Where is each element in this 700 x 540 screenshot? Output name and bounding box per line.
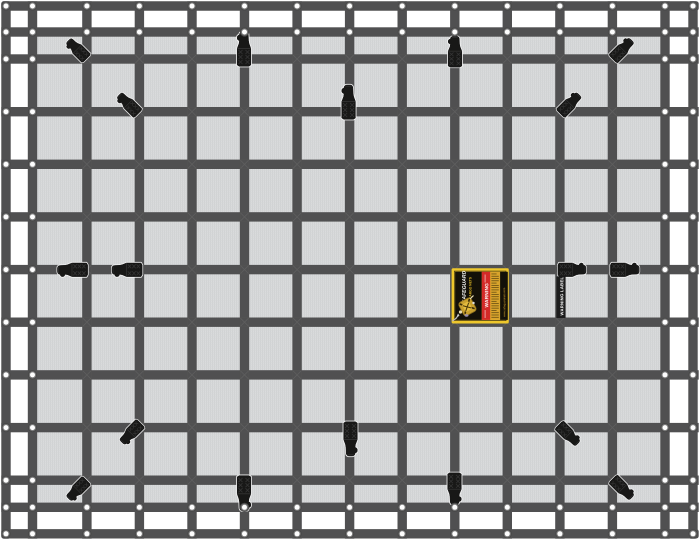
svg-text:www.safeguardnets.com: www.safeguardnets.com <box>502 287 506 317</box>
svg-text:WARNING: WARNING <box>484 283 490 308</box>
svg-text:CARGO NETS: CARGO NETS <box>468 276 472 299</box>
svg-text:WARNING LABEL: WARNING LABEL <box>559 276 564 315</box>
